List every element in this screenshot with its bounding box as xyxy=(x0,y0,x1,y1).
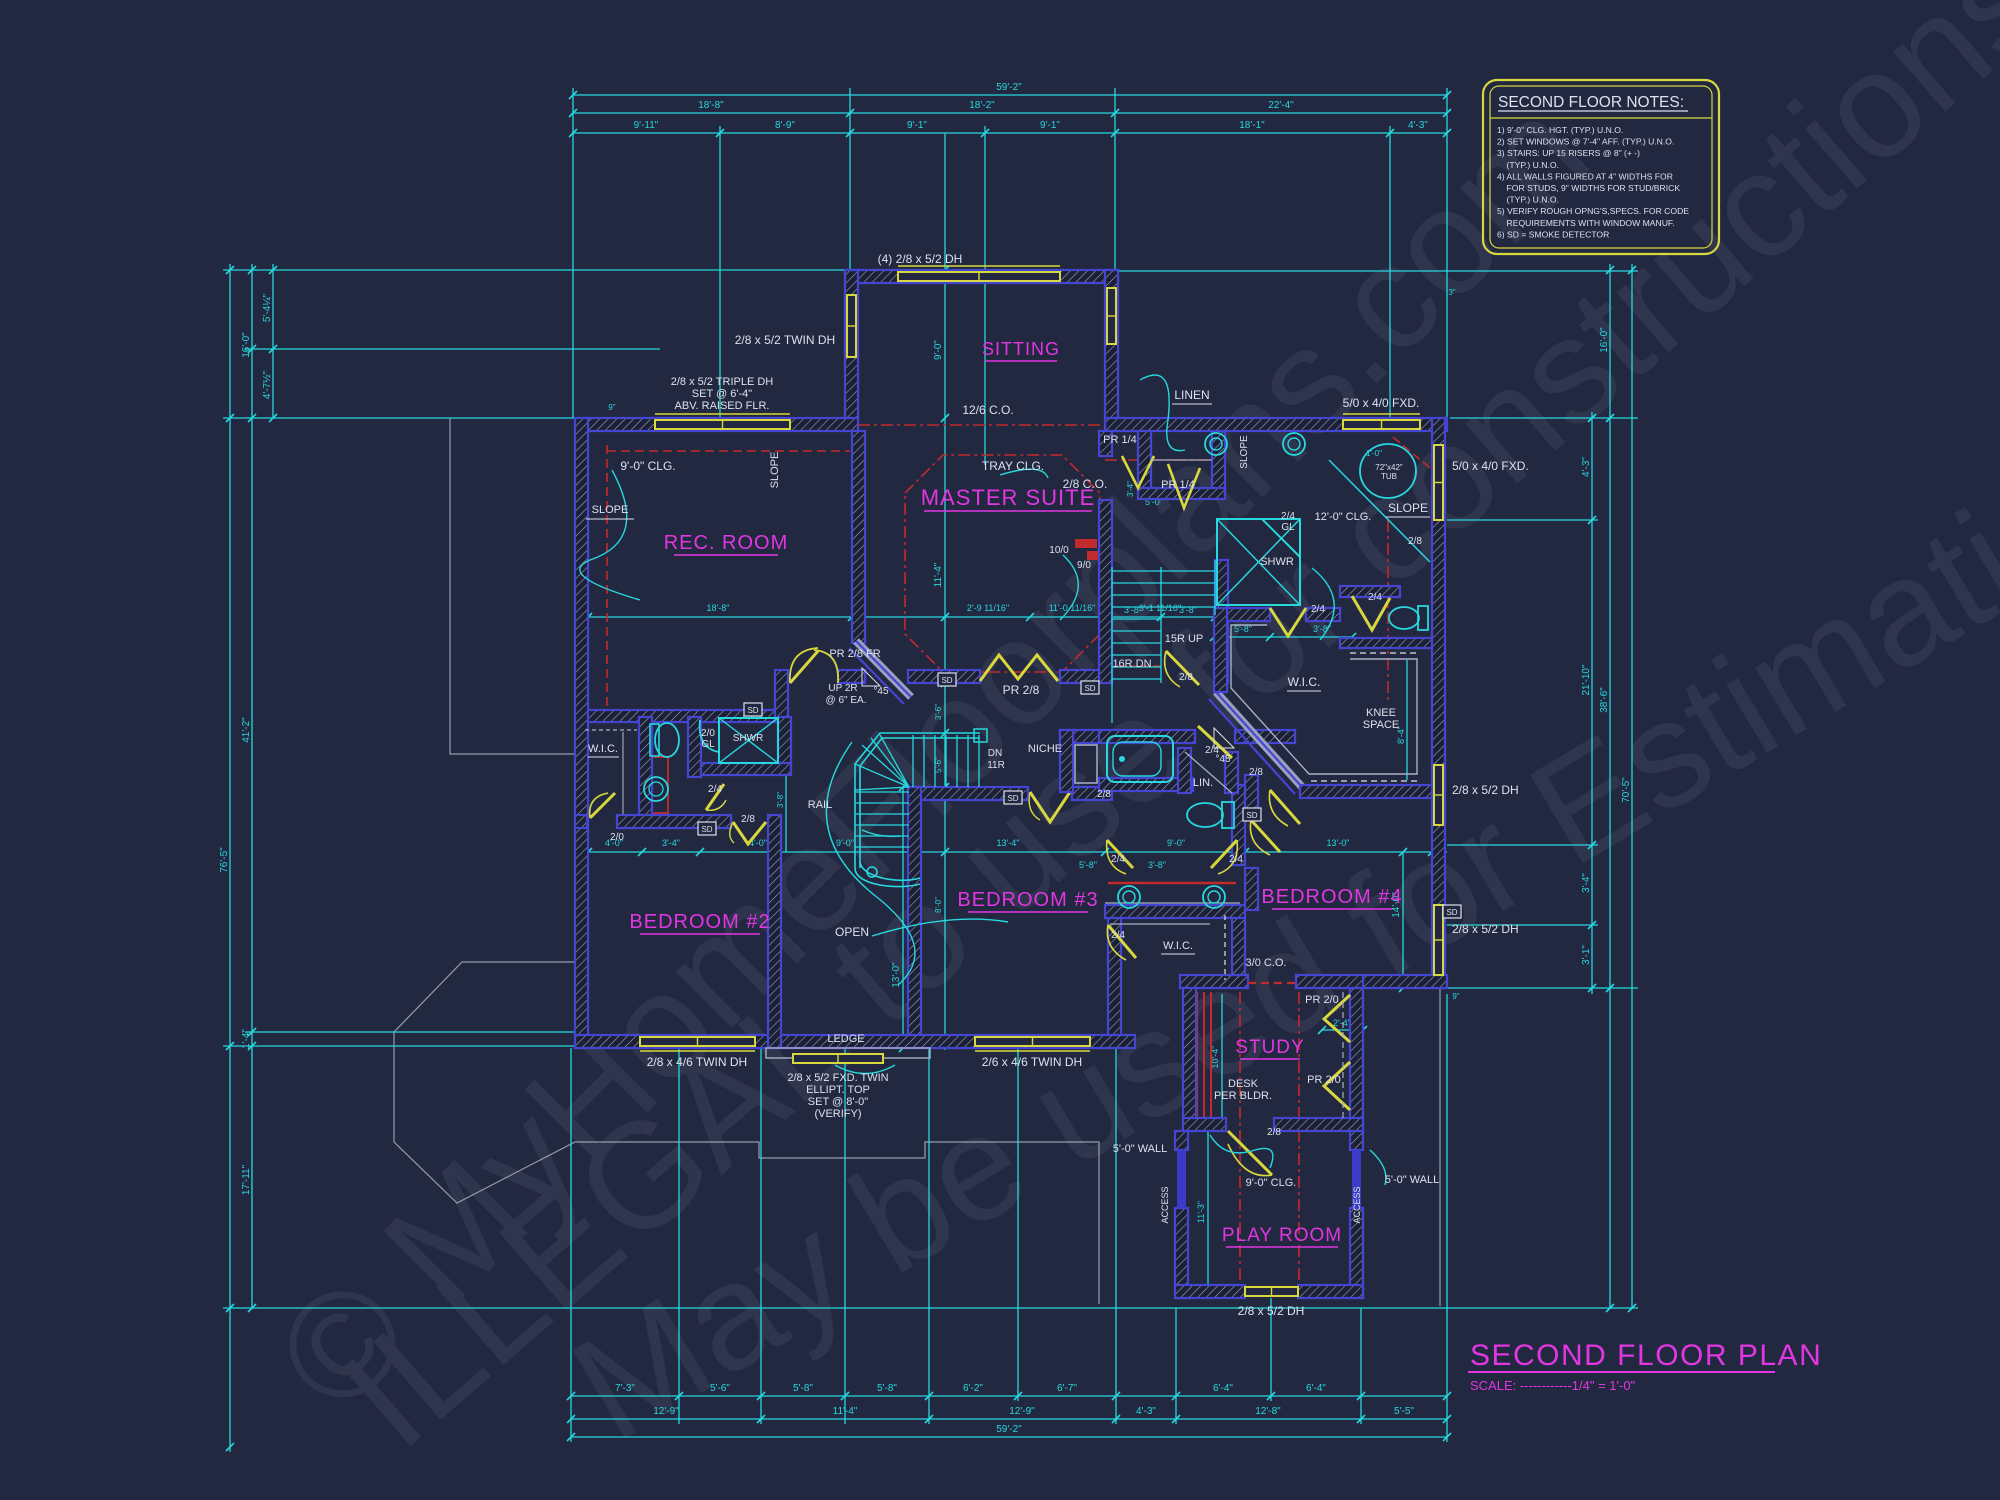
svg-text:2) SET WINDOWS @ 7'-4" AFF. (T: 2) SET WINDOWS @ 7'-4" AFF. (TYP.) U.N.O… xyxy=(1497,137,1674,147)
svg-text:SD: SD xyxy=(747,706,758,715)
svg-text:5'-0" WALL: 5'-0" WALL xyxy=(1385,1174,1440,1186)
svg-text:5'-5": 5'-5" xyxy=(1394,1406,1414,1417)
svg-text:SD: SD xyxy=(701,825,712,834)
svg-text:2/8 x 4/6 TWIN DH: 2/8 x 4/6 TWIN DH xyxy=(647,1055,747,1069)
svg-text:9'-0" CLG.: 9'-0" CLG. xyxy=(1246,1177,1297,1189)
svg-text:RAIL: RAIL xyxy=(808,799,832,811)
svg-text:16R DN: 16R DN xyxy=(1112,658,1151,670)
svg-text:PR 2/8: PR 2/8 xyxy=(1003,683,1040,697)
svg-text:41'-2": 41'-2" xyxy=(241,717,252,743)
svg-text:12'-8": 12'-8" xyxy=(1255,1406,1281,1417)
svg-text:9": 9" xyxy=(1452,992,1459,1001)
svg-text:GL: GL xyxy=(1281,522,1295,533)
svg-text:(TYP.) U.N.O.: (TYP.) U.N.O. xyxy=(1497,160,1559,170)
svg-text:2/8: 2/8 xyxy=(1249,767,1263,778)
svg-text:3'-6": 3'-6" xyxy=(934,704,943,720)
svg-text:ACCESS: ACCESS xyxy=(1160,1186,1170,1223)
svg-text:13'-4": 13'-4" xyxy=(997,838,1020,848)
svg-text:4'-3": 4'-3" xyxy=(1581,457,1592,477)
svg-text:LEDGE: LEDGE xyxy=(827,1033,864,1045)
svg-text:9'-0" CLG.: 9'-0" CLG. xyxy=(620,459,675,473)
svg-text:SET @ 6'-4": SET @ 6'-4" xyxy=(692,388,752,400)
svg-text:SECOND FLOOR PLAN: SECOND FLOOR PLAN xyxy=(1470,1339,1822,1372)
svg-text:16'-0": 16'-0" xyxy=(241,332,252,358)
svg-text:SHWR: SHWR xyxy=(1260,556,1294,568)
svg-text:PER BLDR.: PER BLDR. xyxy=(1214,1090,1272,1102)
svg-text:SECOND FLOOR NOTES:: SECOND FLOOR NOTES: xyxy=(1498,94,1684,111)
svg-text:PR 2/0: PR 2/0 xyxy=(1305,994,1339,1006)
svg-text:2/8: 2/8 xyxy=(741,814,755,825)
svg-text:18'-2": 18'-2" xyxy=(969,100,995,111)
svg-text:9'-0": 9'-0" xyxy=(836,838,854,848)
svg-text:1) 9'-0" CLG. HGT. (TYP.) U.N: 1) 9'-0" CLG. HGT. (TYP.) U.N.O. xyxy=(1497,125,1623,135)
svg-text:SITTING: SITTING xyxy=(982,339,1060,359)
svg-text:5'-8": 5'-8" xyxy=(1079,860,1097,870)
svg-text:2/8 x 5/2 FXD. TWIN: 2/8 x 5/2 FXD. TWIN xyxy=(787,1072,888,1084)
svg-text:2/4: 2/4 xyxy=(1311,604,1325,615)
svg-text:12'-0" CLG.: 12'-0" CLG. xyxy=(1315,511,1372,523)
svg-text:6'-7": 6'-7" xyxy=(1057,1383,1077,1394)
svg-text:22'-4": 22'-4" xyxy=(1268,100,1294,111)
svg-text:SD: SD xyxy=(1084,684,1095,693)
svg-text:2/4: 2/4 xyxy=(1281,511,1295,522)
svg-text:59'-2": 59'-2" xyxy=(996,1424,1022,1435)
svg-text:2/8: 2/8 xyxy=(1408,536,1422,547)
svg-text:21'-10": 21'-10" xyxy=(1581,664,1592,695)
svg-text:9": 9" xyxy=(608,403,615,412)
svg-text:2'-9 11/16": 2'-9 11/16" xyxy=(967,603,1009,613)
svg-text:PR 1/4: PR 1/4 xyxy=(1103,434,1137,446)
svg-text:BEDROOM #3: BEDROOM #3 xyxy=(957,889,1098,911)
svg-text:70'-5": 70'-5" xyxy=(1621,777,1632,803)
svg-text:KNEE: KNEE xyxy=(1366,707,1396,719)
svg-text:OPEN: OPEN xyxy=(835,925,869,939)
svg-text:11'-3": 11'-3" xyxy=(1196,1201,1206,1223)
svg-text:5'-6": 5'-6" xyxy=(710,1383,730,1394)
svg-text:STUDY: STUDY xyxy=(1235,1037,1304,1058)
svg-text:@ 6" EA.: @ 6" EA. xyxy=(826,695,867,706)
svg-text:(4) 2/8 x 5/2 DH: (4) 2/8 x 5/2 DH xyxy=(878,252,963,266)
svg-text:LIN.: LIN. xyxy=(1193,777,1213,789)
svg-text:4'-3": 4'-3" xyxy=(1408,120,1428,131)
svg-text:W.I.C.: W.I.C. xyxy=(1163,940,1193,952)
svg-text:3'-4": 3'-4" xyxy=(1581,873,1592,893)
svg-text:SCALE: ------------1/4" = 1'-0: SCALE: ------------1/4" = 1'-0" xyxy=(1470,1378,1636,1393)
svg-text:59'-2": 59'-2" xyxy=(996,82,1022,93)
svg-text:5/0 x 4/0 FXD.: 5/0 x 4/0 FXD. xyxy=(1343,396,1420,410)
svg-text:6) SD = SMOKE DETECTOR: 6) SD = SMOKE DETECTOR xyxy=(1497,229,1609,239)
svg-text:3'-1": 3'-1" xyxy=(1581,945,1592,965)
svg-text:5'-8": 5'-8" xyxy=(793,1383,813,1394)
svg-text:SET @ 8'-0": SET @ 8'-0" xyxy=(808,1096,868,1108)
svg-text:2/0: 2/0 xyxy=(610,832,624,843)
svg-text:ELLIPT. TOP: ELLIPT. TOP xyxy=(806,1084,870,1096)
svg-text:°45: °45 xyxy=(873,686,889,697)
svg-text:5/0 x 4/0 FXD.: 5/0 x 4/0 FXD. xyxy=(1452,459,1529,473)
svg-text:SLOPE: SLOPE xyxy=(1239,435,1250,469)
svg-text:2/4: 2/4 xyxy=(1111,854,1125,865)
svg-text:3'-1 11/16": 3'-1 11/16" xyxy=(1139,603,1181,613)
svg-text:6'-4": 6'-4" xyxy=(1213,1383,1233,1394)
svg-text:TUB: TUB xyxy=(1381,472,1397,481)
svg-text:PR 1/4: PR 1/4 xyxy=(1161,479,1195,491)
svg-text:LINEN: LINEN xyxy=(1174,388,1209,402)
svg-text:18'-8": 18'-8" xyxy=(698,100,724,111)
svg-text:2/8: 2/8 xyxy=(1267,1127,1281,1138)
svg-text:13'-0": 13'-0" xyxy=(1327,838,1350,848)
svg-text:SD: SD xyxy=(941,676,952,685)
svg-text:TRAY CLG.: TRAY CLG. xyxy=(982,459,1044,473)
svg-text:SPACE: SPACE xyxy=(1363,719,1399,731)
svg-text:2/8: 2/8 xyxy=(1097,789,1111,800)
svg-text:10/0: 10/0 xyxy=(1049,545,1069,556)
svg-text:2/4: 2/4 xyxy=(708,784,722,795)
svg-text:2/4: 2/4 xyxy=(1368,592,1382,603)
svg-text:8'-9": 8'-9" xyxy=(775,120,795,131)
svg-text:(TYP.) U.N.O.: (TYP.) U.N.O. xyxy=(1497,195,1559,205)
svg-text:9'-11": 9'-11" xyxy=(634,120,659,131)
svg-text:9'-0": 9'-0" xyxy=(933,340,944,360)
svg-text:3'-4": 3'-4" xyxy=(662,838,680,848)
svg-text:SD: SD xyxy=(1446,908,1457,917)
svg-text:3'-8": 3'-8" xyxy=(776,792,785,808)
svg-text:ABV. RAISED FLR.: ABV. RAISED FLR. xyxy=(675,400,770,412)
svg-text:4'-3": 4'-3" xyxy=(1136,1406,1156,1417)
svg-text:12'-9": 12'-9" xyxy=(1009,1406,1035,1417)
svg-text:6'-2": 6'-2" xyxy=(963,1383,983,1394)
svg-text:12/6 C.O.: 12/6 C.O. xyxy=(962,403,1013,417)
svg-text:5'-4¼": 5'-4¼" xyxy=(261,293,273,322)
svg-text:GL: GL xyxy=(701,739,715,750)
svg-text:2/8 x 5/2 DH: 2/8 x 5/2 DH xyxy=(1452,922,1519,936)
svg-text:PR 2/0: PR 2/0 xyxy=(1307,1074,1341,1086)
svg-text:W.I.C.: W.I.C. xyxy=(1288,675,1321,689)
svg-text:5'-0" WALL: 5'-0" WALL xyxy=(1113,1143,1168,1155)
svg-text:1'-0": 1'-0" xyxy=(1366,449,1382,458)
svg-text:3'-8": 3'-8" xyxy=(1148,860,1166,870)
svg-text:2/8 x 5/2 DH: 2/8 x 5/2 DH xyxy=(1238,1304,1305,1318)
svg-text:17'-11": 17'-11" xyxy=(241,1164,252,1195)
svg-text:6'-4": 6'-4" xyxy=(1306,1383,1326,1394)
svg-text:DN: DN xyxy=(988,748,1002,759)
svg-text:BEDROOM #2: BEDROOM #2 xyxy=(629,911,770,933)
svg-text:11R: 11R xyxy=(987,760,1005,771)
svg-text:ACCESS: ACCESS xyxy=(1352,1186,1362,1223)
svg-text:76'-5": 76'-5" xyxy=(219,847,230,873)
svg-text:7'-3": 7'-3" xyxy=(615,1383,635,1394)
svg-text:2/8: 2/8 xyxy=(1179,672,1193,683)
svg-text:13'-0": 13'-0" xyxy=(891,962,902,988)
svg-text:NICHE: NICHE xyxy=(1028,743,1062,755)
svg-text:SD: SD xyxy=(1007,794,1018,803)
svg-text:SLOPE: SLOPE xyxy=(592,504,629,516)
svg-text:REQUIREMENTS WITH WINDOW MANUF: REQUIREMENTS WITH WINDOW MANUF. xyxy=(1497,218,1675,228)
svg-text:38'-6": 38'-6" xyxy=(1599,687,1610,713)
svg-text:9'-1": 9'-1" xyxy=(907,120,927,131)
svg-text:11'-4": 11'-4" xyxy=(933,562,944,587)
svg-text:REC. ROOM: REC. ROOM xyxy=(664,532,789,554)
svg-text:8'-0": 8'-0" xyxy=(934,897,943,913)
svg-text:18'-1": 18'-1" xyxy=(1239,120,1265,131)
svg-text:3": 3" xyxy=(1448,288,1455,297)
svg-text:PLAY ROOM: PLAY ROOM xyxy=(1222,1225,1342,1246)
svg-text:2'-4": 2'-4" xyxy=(1333,1018,1351,1028)
svg-text:W.I.C.: W.I.C. xyxy=(588,743,618,755)
svg-text:BEDROOM #4: BEDROOM #4 xyxy=(1261,886,1402,908)
svg-text:2/4: 2/4 xyxy=(1229,854,1243,865)
svg-text:2/4: 2/4 xyxy=(1111,930,1125,941)
svg-text:SHWR: SHWR xyxy=(733,733,764,744)
svg-text:2/6 x 4/6 TWIN DH: 2/6 x 4/6 TWIN DH xyxy=(982,1055,1082,1069)
svg-text:2/8 x 5/2 TWIN DH: 2/8 x 5/2 TWIN DH xyxy=(735,333,835,347)
svg-text:3) STAIRS: UP 15 RISERS @ 8" (: 3) STAIRS: UP 15 RISERS @ 8" (+ -) xyxy=(1497,148,1640,158)
svg-text:2/8 x 5/2 DH: 2/8 x 5/2 DH xyxy=(1452,783,1519,797)
svg-text:SD: SD xyxy=(1246,811,1257,820)
svg-text:2/8 x 5/2 TRIPLE DH: 2/8 x 5/2 TRIPLE DH xyxy=(671,376,774,388)
svg-text:(VERIFY): (VERIFY) xyxy=(814,1108,861,1120)
svg-text:12'-9": 12'-9" xyxy=(653,1406,679,1417)
svg-text:9'-0": 9'-0" xyxy=(1167,838,1185,848)
svg-text:3'-4": 3'-4" xyxy=(1126,481,1135,497)
svg-text:16'-0": 16'-0" xyxy=(1599,327,1610,353)
svg-text:18'-8": 18'-8" xyxy=(707,603,730,613)
svg-text:UP 2R: UP 2R xyxy=(828,683,857,694)
svg-text:9/0: 9/0 xyxy=(1077,560,1091,571)
svg-text:15R UP: 15R UP xyxy=(1165,633,1204,645)
svg-text:PR 2/8 FR: PR 2/8 FR xyxy=(829,648,880,660)
svg-text:4) ALL WALLS FIGURED AT 4" WID: 4) ALL WALLS FIGURED AT 4" WIDTHS FOR xyxy=(1497,171,1673,181)
svg-text:SLOPE: SLOPE xyxy=(769,452,781,489)
svg-text:SLOPE: SLOPE xyxy=(1388,501,1428,515)
svg-text:5) VERIFY ROUGH OPNG'S,SPECS.: 5) VERIFY ROUGH OPNG'S,SPECS. FOR CODE xyxy=(1497,206,1689,216)
svg-text:4'-7½": 4'-7½" xyxy=(262,370,273,399)
svg-text:9'-1": 9'-1" xyxy=(1040,120,1060,131)
svg-text:DESK: DESK xyxy=(1228,1078,1259,1090)
svg-text:2/0: 2/0 xyxy=(701,728,715,739)
svg-text:°45: °45 xyxy=(1215,754,1231,765)
svg-text:72"x42": 72"x42" xyxy=(1375,463,1403,472)
svg-text:3/0 C.O.: 3/0 C.O. xyxy=(1246,957,1287,969)
svg-text:FOR STUDS, 9" WIDTHS FOR STUD/: FOR STUDS, 9" WIDTHS FOR STUD/BRICK xyxy=(1497,183,1680,193)
svg-text:5'-8": 5'-8" xyxy=(877,1383,897,1394)
svg-text:MASTER SUITE: MASTER SUITE xyxy=(921,485,1096,510)
